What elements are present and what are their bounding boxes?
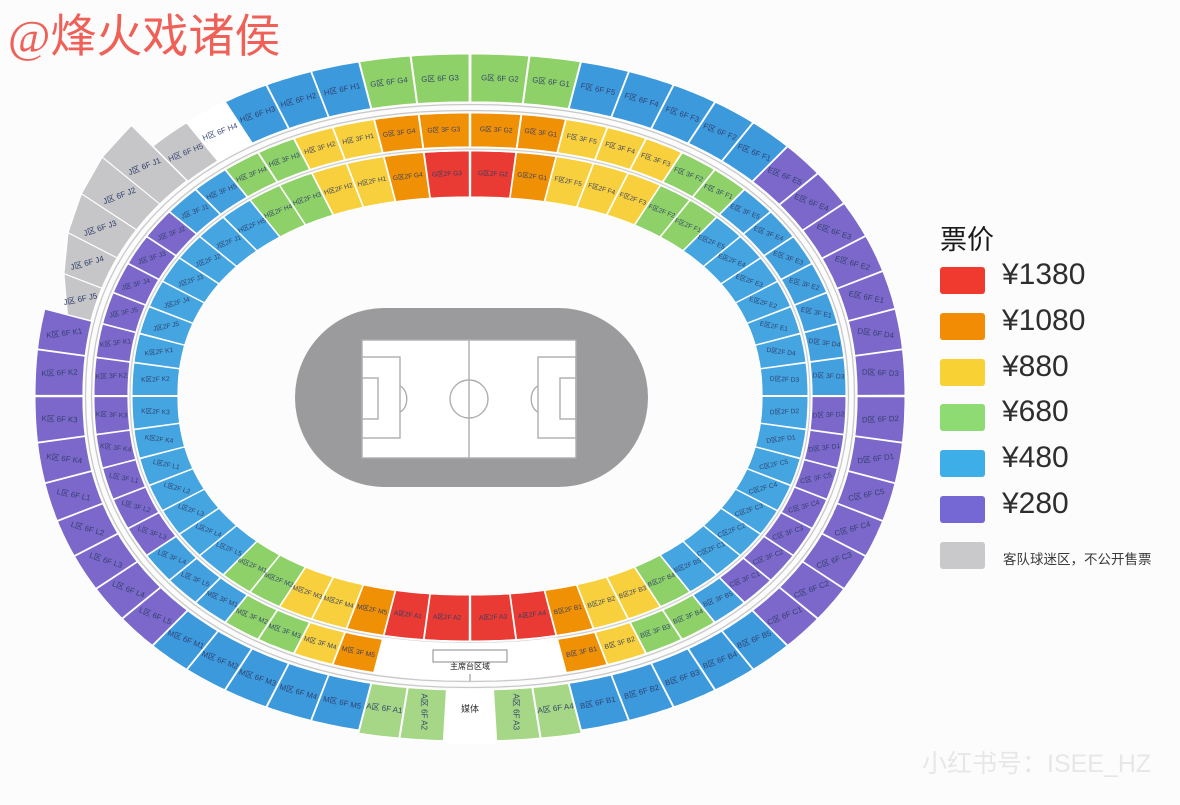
svg-text:主席台区域: 主席台区域 xyxy=(450,661,490,671)
svg-text:D区 3F D3: D区 3F D3 xyxy=(812,371,845,380)
svg-text:G区 3F G2: G区 3F G2 xyxy=(480,125,513,134)
svg-text:G区 6F G2: G区 6F G2 xyxy=(481,73,519,84)
svg-text:G区2F G2: G区2F G2 xyxy=(478,169,509,178)
svg-text:G区 6F G3: G区 6F G3 xyxy=(421,73,459,84)
svg-text:K区 6F K3: K区 6F K3 xyxy=(41,414,77,425)
svg-text:A区 6F A2: A区 6F A2 xyxy=(420,694,429,731)
svg-text:D区 6F D3: D区 6F D3 xyxy=(862,368,899,379)
svg-text:K区2F K3: K区2F K3 xyxy=(141,407,170,416)
svg-text:K区2F K2: K区2F K2 xyxy=(141,375,170,384)
svg-text:G区 3F G3: G区 3F G3 xyxy=(427,125,460,134)
svg-text:D区 3F D2: D区 3F D2 xyxy=(812,410,845,419)
svg-text:A区2F A3: A区2F A3 xyxy=(479,613,508,622)
svg-text:媒体: 媒体 xyxy=(461,703,479,714)
svg-text:D区2F D2: D区2F D2 xyxy=(770,407,800,416)
svg-text:D区2F D3: D区2F D3 xyxy=(770,375,800,384)
svg-text:K区 3F K2: K区 3F K2 xyxy=(96,371,128,380)
svg-text:D区 6F D2: D区 6F D2 xyxy=(862,414,899,425)
svg-text:K区 6F K2: K区 6F K2 xyxy=(41,368,77,379)
svg-text:G区2F G3: G区2F G3 xyxy=(432,169,463,178)
svg-text:K区 3F K3: K区 3F K3 xyxy=(96,410,128,419)
svg-text:A区 6F A3: A区 6F A3 xyxy=(511,694,520,731)
svg-text:A区2F A2: A区2F A2 xyxy=(433,613,462,622)
